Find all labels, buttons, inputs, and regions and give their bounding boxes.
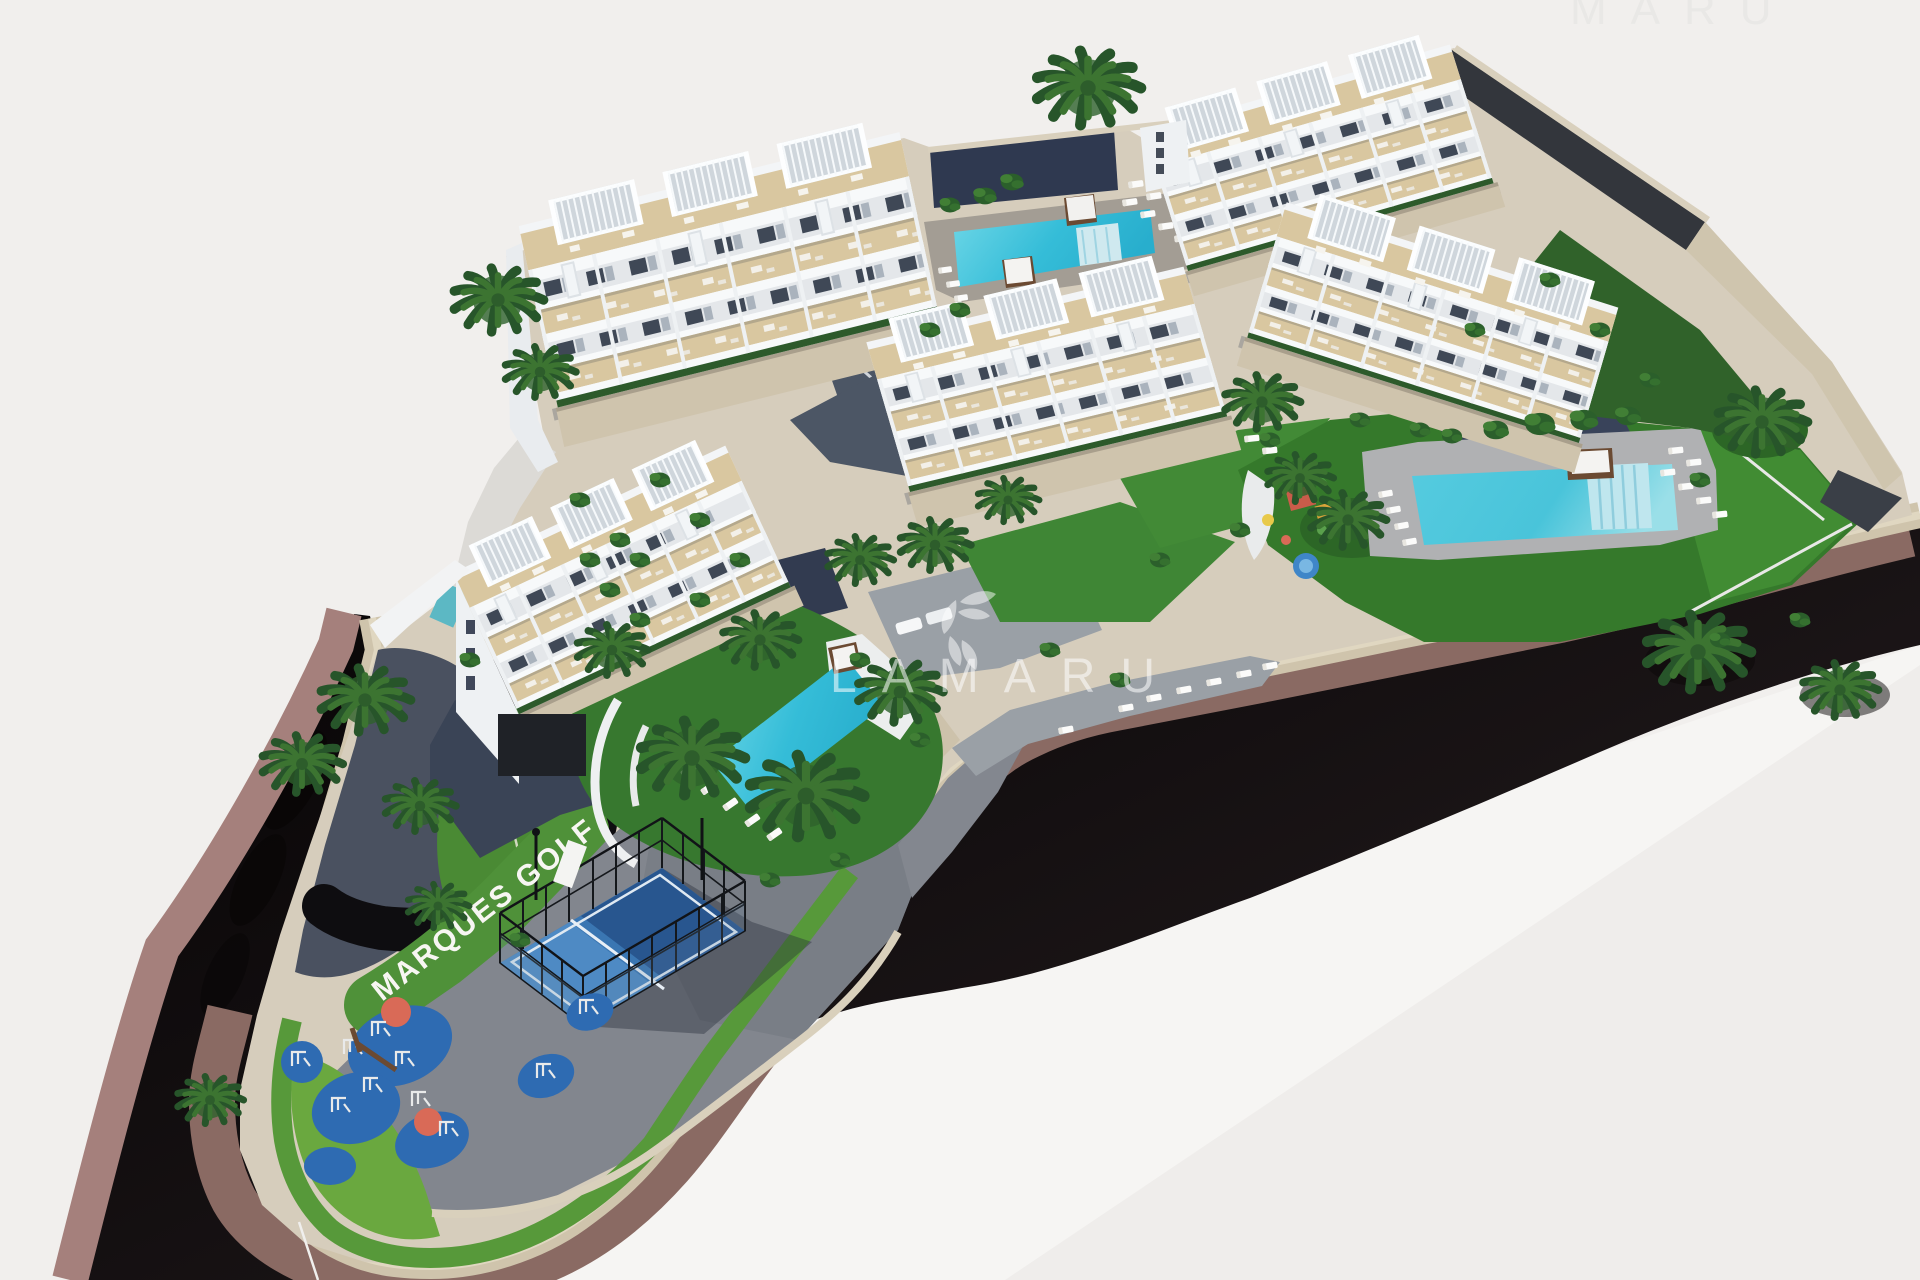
svg-text:LAMARU: LAMARU	[830, 650, 1180, 703]
svg-text:MARU: MARU	[1570, 0, 1796, 34]
